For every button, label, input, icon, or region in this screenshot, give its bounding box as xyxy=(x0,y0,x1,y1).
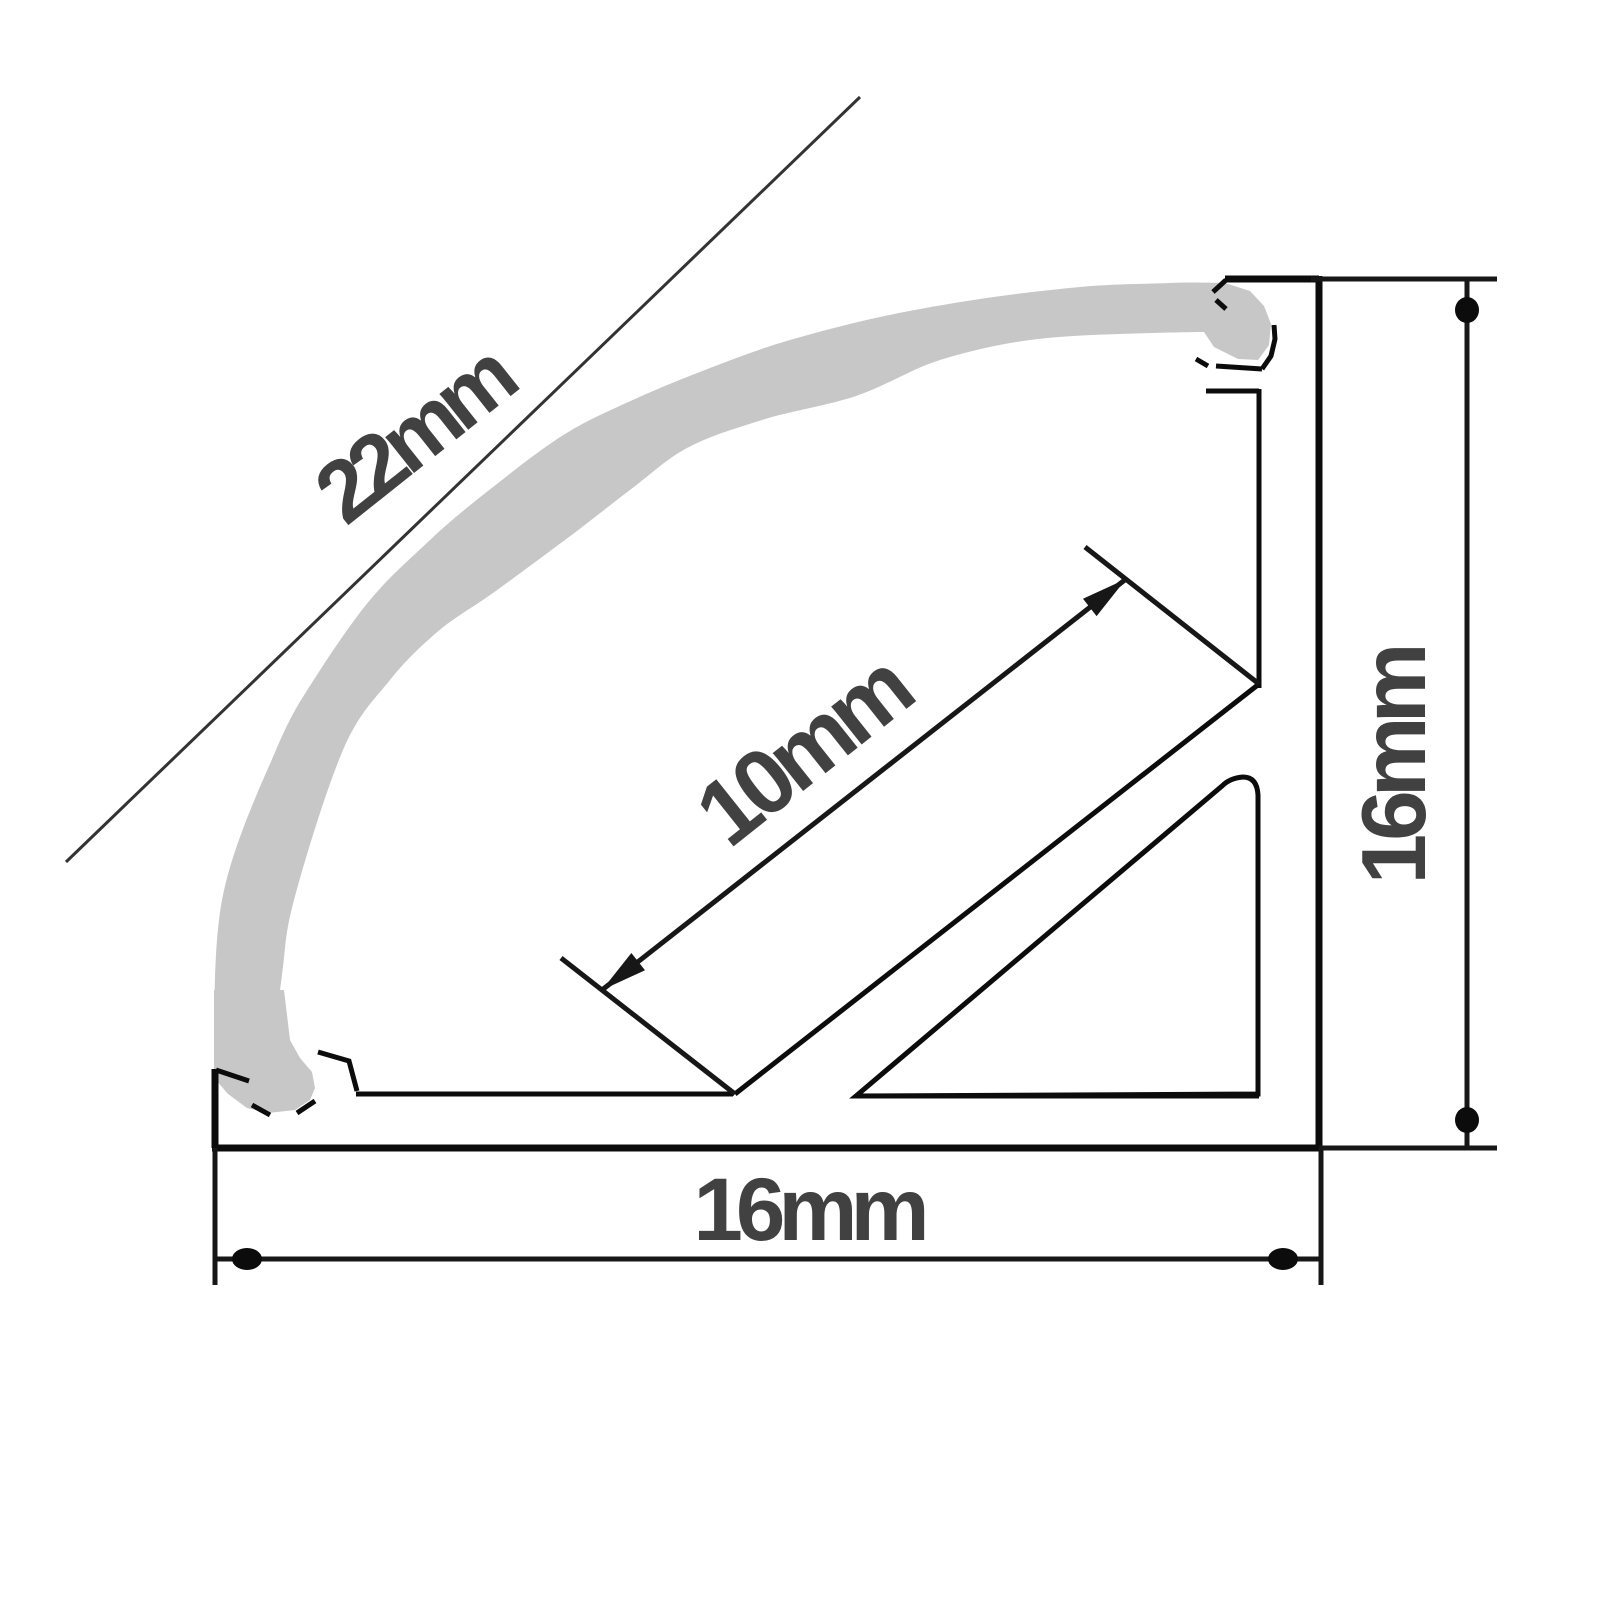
svg-text:16mm: 16mm xyxy=(693,1159,924,1259)
svg-text:16mm: 16mm xyxy=(1344,647,1445,884)
